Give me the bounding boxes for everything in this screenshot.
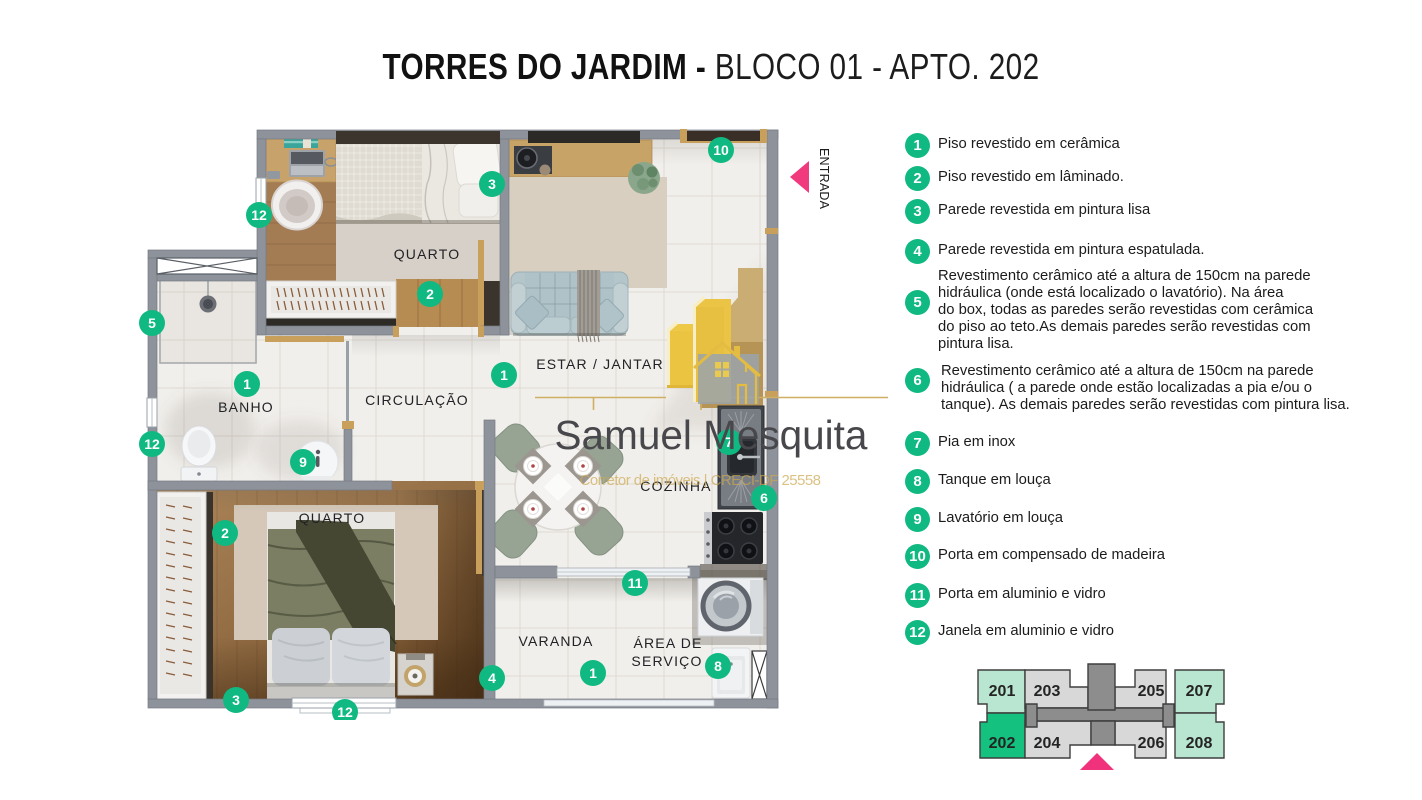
svg-text:10: 10 — [713, 142, 729, 158]
svg-text:12: 12 — [251, 207, 267, 223]
svg-text:11: 11 — [628, 575, 643, 591]
svg-text:204: 204 — [1034, 735, 1061, 752]
svg-text:3: 3 — [488, 176, 496, 192]
svg-text:1: 1 — [589, 665, 597, 681]
svg-text:1: 1 — [500, 367, 508, 383]
svg-text:VARANDA: VARANDA — [518, 633, 593, 649]
svg-text:207: 207 — [1186, 683, 1213, 700]
svg-text:206: 206 — [1138, 735, 1165, 752]
svg-text:5: 5 — [148, 315, 156, 331]
svg-text:QUARTO: QUARTO — [394, 246, 461, 262]
svg-text:201: 201 — [989, 683, 1016, 700]
svg-text:6: 6 — [760, 490, 768, 506]
svg-text:SERVIÇO: SERVIÇO — [631, 653, 702, 669]
svg-text:ÁREA DE: ÁREA DE — [633, 635, 702, 651]
svg-text:208: 208 — [1186, 735, 1213, 752]
svg-text:3: 3 — [232, 692, 240, 708]
svg-text:CIRCULAÇÃO: CIRCULAÇÃO — [365, 392, 469, 408]
svg-text:202: 202 — [989, 735, 1016, 752]
svg-text:2: 2 — [221, 525, 229, 541]
svg-text:ESTAR / JANTAR: ESTAR / JANTAR — [536, 356, 664, 372]
svg-text:4: 4 — [488, 670, 496, 686]
svg-text:205: 205 — [1138, 683, 1165, 700]
svg-text:1: 1 — [243, 376, 251, 392]
svg-text:8: 8 — [714, 658, 722, 674]
svg-text:12: 12 — [337, 704, 353, 720]
svg-text:QUARTO: QUARTO — [299, 510, 366, 526]
svg-text:2: 2 — [426, 286, 434, 302]
svg-text:203: 203 — [1034, 683, 1061, 700]
